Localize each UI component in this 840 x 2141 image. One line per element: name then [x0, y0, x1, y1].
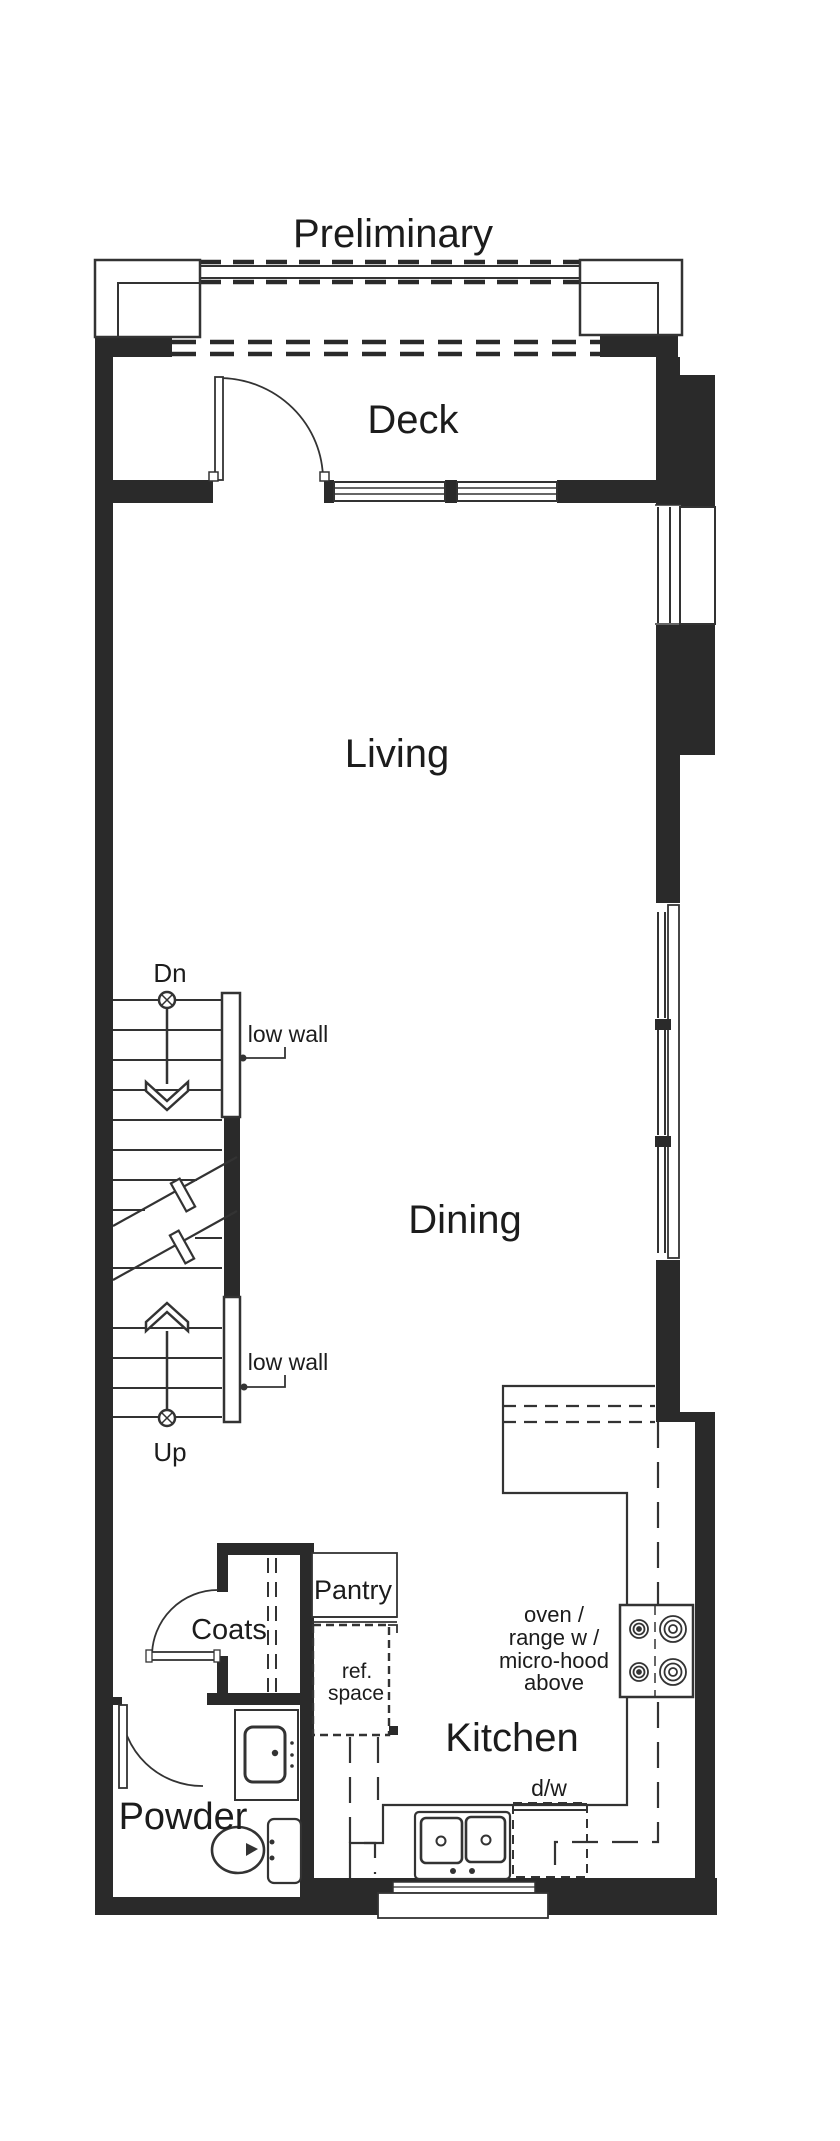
left-exterior-wall [95, 357, 113, 1915]
deck-right-wall-stub [600, 335, 678, 357]
stair-mid-wall [224, 1117, 240, 1297]
right-wall-lower [656, 1258, 680, 1414]
oven-note-line2: range w / [509, 1625, 600, 1650]
coats-closet-rod [268, 1558, 276, 1692]
room-label-pantry: Pantry [314, 1575, 393, 1605]
kitchen-window-sill [378, 1893, 548, 1918]
dining-window-trim [668, 905, 679, 1258]
coats-top-wall [217, 1543, 312, 1555]
deck-bottom-wall-mid [324, 480, 334, 503]
vanity-drain [272, 1750, 278, 1756]
stair-label-dn: Dn [153, 958, 186, 988]
room-label-kitchen: Kitchen [445, 1716, 578, 1760]
deck-bottom-wall-left [95, 480, 213, 503]
range-cooktop [620, 1605, 693, 1697]
floor-plan-page: Preliminary Deck Living Dining Kitchen P… [0, 0, 840, 2141]
dining-window-mullion-1 [655, 1019, 671, 1030]
kitchen-counter-outline [350, 1386, 655, 1878]
ref-space-label-line1: ref. [342, 1660, 372, 1683]
deck-window-1 [334, 482, 445, 501]
dishwasher-box [513, 1803, 587, 1877]
stair-up-arrow [146, 1303, 188, 1426]
deck-rail-assembly [95, 260, 682, 354]
room-label-living: Living [345, 732, 450, 776]
coats-bottom-wall [207, 1693, 312, 1705]
bottom-wall-right-of-window [535, 1878, 717, 1915]
powder-bottom-wall [97, 1897, 305, 1915]
right-wall-mid [656, 623, 680, 905]
kitchen-window [378, 1882, 548, 1918]
dining-window-run [655, 903, 681, 1260]
dishwasher-label: d/w [531, 1775, 567, 1801]
dining-window-mullion-2 [655, 1136, 671, 1147]
kitchen-sink [415, 1812, 510, 1879]
floor-plan-drawing: Preliminary Deck Living Dining Kitchen P… [0, 0, 840, 2141]
low-wall-label-lower: low wall [248, 1349, 329, 1375]
oven-note-line1: oven / [524, 1602, 585, 1627]
low-wall-leader-upper [240, 1047, 286, 1062]
deck-door [209, 377, 329, 481]
right-wall-jog [656, 1412, 715, 1422]
living-window [655, 505, 715, 625]
stair-down-arrow [146, 992, 188, 1110]
room-label-coats: Coats [191, 1614, 267, 1646]
coats-left-wall-upper [217, 1543, 228, 1592]
living-window-trim [680, 507, 715, 624]
low-wall-lower [224, 1297, 240, 1422]
low-wall-leader-lower [241, 1375, 286, 1391]
powder-door-jamb-stub [97, 1697, 122, 1705]
room-label-dining: Dining [408, 1198, 521, 1242]
right-wall-bump-mid [680, 625, 715, 755]
deck-window-2 [457, 482, 557, 501]
stair-label-up: Up [153, 1437, 186, 1467]
right-wall-upper [656, 357, 680, 507]
ref-space-label-line2: space [328, 1682, 384, 1705]
kitchen-exterior-wall [695, 1422, 715, 1915]
deck-bottom-wall-pier [445, 480, 457, 503]
ref-space-notch [389, 1726, 398, 1735]
oven-note-line4: above [524, 1670, 584, 1695]
room-label-deck: Deck [367, 398, 459, 442]
rail-corner-block-left [95, 260, 200, 337]
rail-corner-block-right [580, 260, 682, 335]
deck-left-wall-stub [95, 335, 172, 357]
plan-title: Preliminary [293, 212, 493, 256]
low-wall-upper [222, 993, 240, 1117]
right-wall-bump-upper [680, 375, 715, 507]
room-label-powder: Powder [119, 1796, 248, 1838]
powder-door [119, 1705, 203, 1788]
deck-rail-band [200, 266, 580, 278]
powder-vanity [235, 1710, 298, 1800]
low-wall-label-upper: low wall [248, 1021, 329, 1047]
